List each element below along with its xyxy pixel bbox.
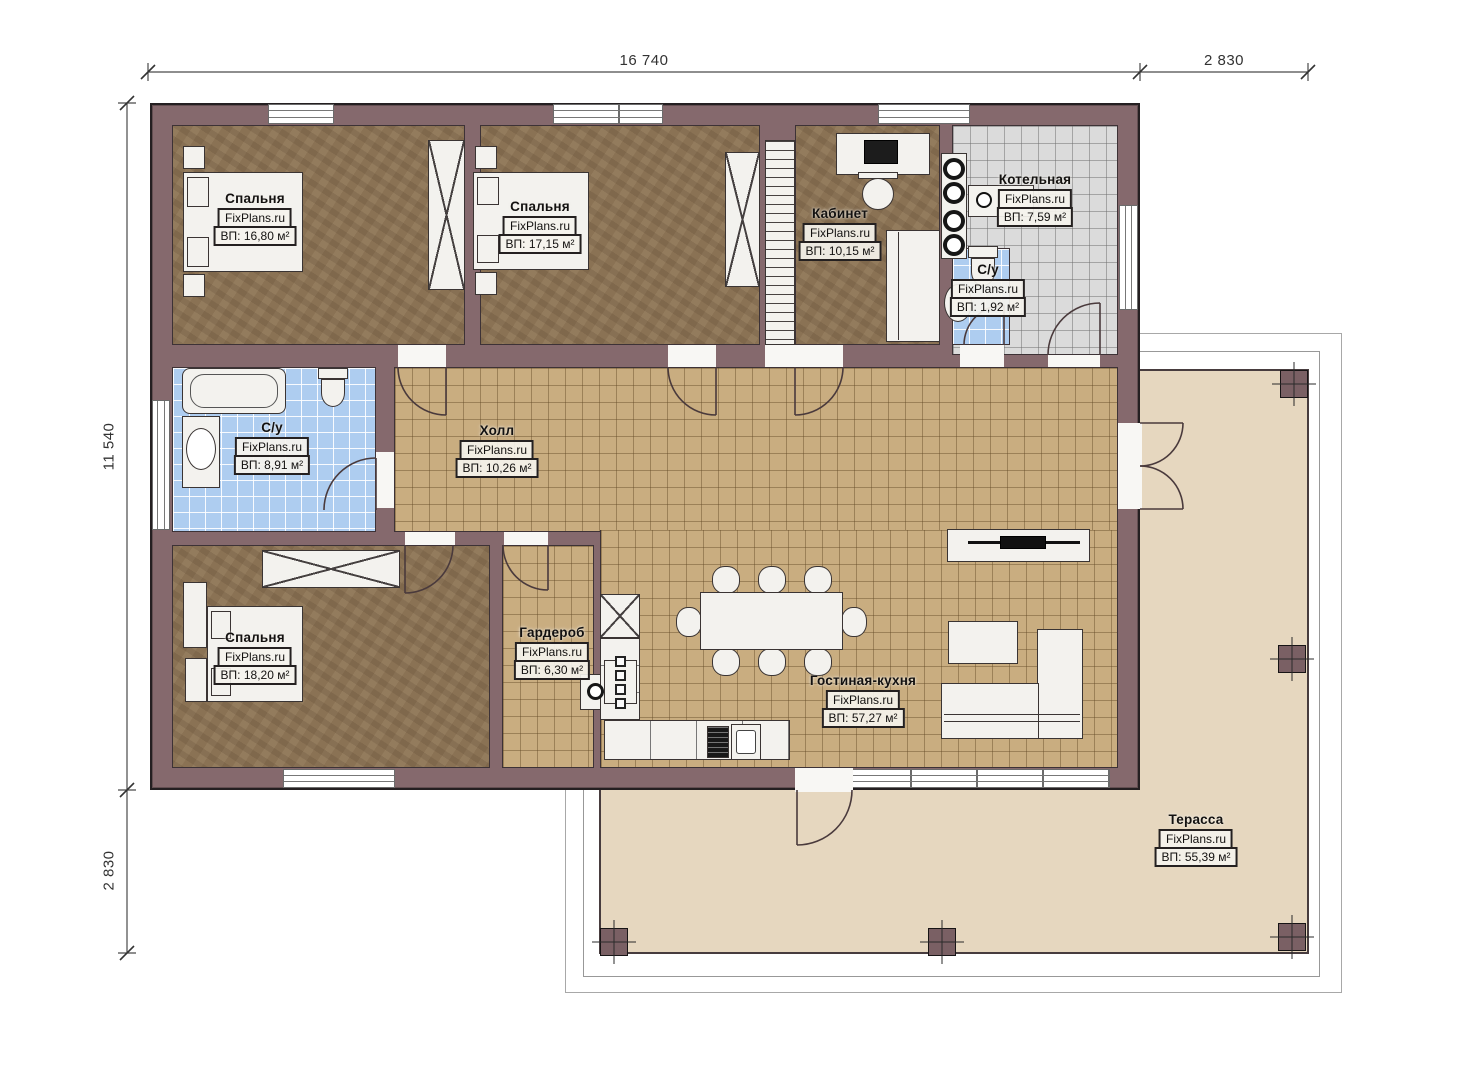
floor-plan: 16 740 2 830 11 540 2 830 Спальня FixPla… (0, 0, 1473, 1080)
nightstand-icon (183, 146, 205, 169)
chair-icon (804, 566, 832, 594)
room-label-wardrobe: Гардероб FixPlans.ru ВП: 6,30 м² (514, 625, 590, 680)
room-name: Гостиная-кухня (810, 673, 916, 688)
coffee-table-icon (948, 621, 1018, 664)
window (152, 400, 170, 530)
dimension-height-bottom: 2 830 (101, 838, 118, 904)
nightstand-icon (183, 274, 205, 297)
toilet-icon (968, 246, 998, 258)
room-name: С/у (234, 420, 310, 435)
boiler-pipe-icon (943, 158, 965, 180)
brand-watermark: FixPlans.ru (235, 437, 309, 457)
room-label-living: Гостиная-кухня FixPlans.ru ВП: 57,27 м² (810, 673, 916, 728)
window (878, 104, 970, 124)
room-area: ВП: 1,92 м² (950, 297, 1026, 317)
room-label-bedroom1: Спальня FixPlans.ru ВП: 16,80 м² (214, 191, 297, 246)
shelving-icon (765, 140, 795, 345)
room-area: ВП: 57,27 м² (822, 708, 905, 728)
room-name: Спальня (214, 191, 297, 206)
window (1119, 205, 1138, 310)
terrace-column (1278, 923, 1306, 951)
dimension-width-main: 16 740 (620, 52, 669, 69)
brand-watermark: FixPlans.ru (515, 642, 589, 662)
terrace-column (600, 928, 628, 956)
brand-watermark: FixPlans.ru (951, 279, 1025, 299)
brand-watermark: FixPlans.ru (218, 647, 292, 667)
door-opening (504, 532, 548, 545)
washer-door-icon (587, 683, 604, 700)
chair-icon (841, 607, 867, 637)
chair-icon (758, 648, 786, 676)
brand-watermark: FixPlans.ru (218, 208, 292, 228)
room-label-hall: Холл FixPlans.ru ВП: 10,26 м² (456, 423, 539, 478)
boiler-pipe-icon (943, 210, 965, 232)
terrace-column (1278, 645, 1306, 673)
dining-table-icon (700, 592, 843, 650)
boiler-dial-icon (976, 192, 992, 208)
chair-icon (712, 648, 740, 676)
nightstand-icon (475, 272, 497, 295)
dresser-icon (185, 658, 207, 702)
room-name: Спальня (499, 199, 582, 214)
bathtub-inner (190, 374, 278, 408)
dishwasher-icon (707, 726, 729, 758)
nightstand-icon (475, 146, 497, 169)
room-area: ВП: 17,15 м² (499, 234, 582, 254)
burner-icon (615, 656, 626, 667)
window (283, 769, 395, 788)
door-opening (376, 452, 394, 508)
burner-icon (615, 670, 626, 681)
burner-icon (615, 698, 626, 709)
pillow-icon (477, 235, 499, 263)
room-area: ВП: 18,20 м² (214, 665, 297, 685)
room-name: Котельная (997, 172, 1073, 187)
room-label-boiler: Котельная FixPlans.ru ВП: 7,59 м² (997, 172, 1073, 227)
sofa-office-line (898, 232, 899, 340)
room-area: ВП: 6,30 м² (514, 660, 590, 680)
terrace-column (1280, 370, 1308, 398)
boiler-pipe-icon (943, 182, 965, 204)
sink-icon (186, 428, 216, 470)
door-opening (795, 768, 853, 792)
room-name: Терасса (1155, 812, 1238, 827)
fridge-icon (600, 594, 640, 638)
brand-watermark: FixPlans.ru (826, 690, 900, 710)
brand-watermark: FixPlans.ru (1159, 829, 1233, 849)
room-area: ВП: 10,26 м² (456, 458, 539, 478)
room-area: ВП: 8,91 м² (234, 455, 310, 475)
door-opening (1118, 423, 1142, 509)
chair-icon (676, 607, 702, 637)
brand-watermark: FixPlans.ru (460, 440, 534, 460)
room-label-bedroom2: Спальня FixPlans.ru ВП: 17,15 м² (499, 199, 582, 254)
sink-basin (736, 730, 756, 754)
dresser-icon (183, 582, 207, 648)
room-label-bathroom: С/у FixPlans.ru ВП: 8,91 м² (234, 420, 310, 475)
room-area: ВП: 55,39 м² (1155, 847, 1238, 867)
room-area: ВП: 16,80 м² (214, 226, 297, 246)
sofa-backrest-lines (944, 714, 1080, 722)
room-label-bedroom3: Спальня FixPlans.ru ВП: 18,20 м² (214, 630, 297, 685)
sofa-chaise-icon (1037, 629, 1083, 739)
closet-icon (262, 550, 400, 588)
pillow-icon (477, 177, 499, 205)
window-glazing (845, 769, 1110, 788)
room-name: Холл (456, 423, 539, 438)
boiler-pipe-icon (943, 234, 965, 256)
chair-icon (804, 648, 832, 676)
tv-box-icon (1000, 536, 1046, 549)
toilet-bowl-icon (321, 379, 345, 407)
stove-icon (604, 660, 637, 704)
door-opening (765, 345, 795, 367)
window (268, 104, 334, 124)
dimension-width-right: 2 830 (1204, 52, 1244, 69)
door-opening (1048, 355, 1100, 367)
burner-icon (615, 684, 626, 695)
room-name: Гардероб (514, 625, 590, 640)
pillow-icon (187, 177, 209, 207)
room-label-terrace: Терасса FixPlans.ru ВП: 55,39 м² (1155, 812, 1238, 867)
closet-icon (725, 152, 760, 287)
kitchen-counter (604, 720, 790, 760)
brand-watermark: FixPlans.ru (803, 223, 877, 243)
pillow-icon (187, 237, 209, 267)
door-opening (795, 345, 843, 367)
room-name: С/у (950, 262, 1026, 277)
room-name: Спальня (214, 630, 297, 645)
sofa-office-icon (886, 230, 940, 342)
room-label-wc-small: С/у FixPlans.ru ВП: 1,92 м² (950, 262, 1026, 317)
dimension-height-main: 11 540 (101, 414, 118, 480)
room-area: ВП: 10,15 м² (799, 241, 882, 261)
chair-icon (712, 566, 740, 594)
sofa-seat-icon (941, 683, 1039, 739)
door-opening (405, 532, 455, 545)
chair-icon (758, 566, 786, 594)
terrace-column (928, 928, 956, 956)
closet-icon (428, 140, 465, 290)
room-label-office: Кабинет FixPlans.ru ВП: 10,15 м² (799, 206, 882, 261)
door-opening (668, 345, 716, 367)
door-opening (960, 345, 1004, 367)
brand-watermark: FixPlans.ru (503, 216, 577, 236)
printer-icon (864, 140, 898, 164)
room-name: Кабинет (799, 206, 882, 221)
brand-watermark: FixPlans.ru (998, 189, 1072, 209)
window (553, 104, 663, 124)
door-opening (398, 345, 446, 367)
room-area: ВП: 7,59 м² (997, 207, 1073, 227)
toilet-icon (318, 368, 348, 379)
